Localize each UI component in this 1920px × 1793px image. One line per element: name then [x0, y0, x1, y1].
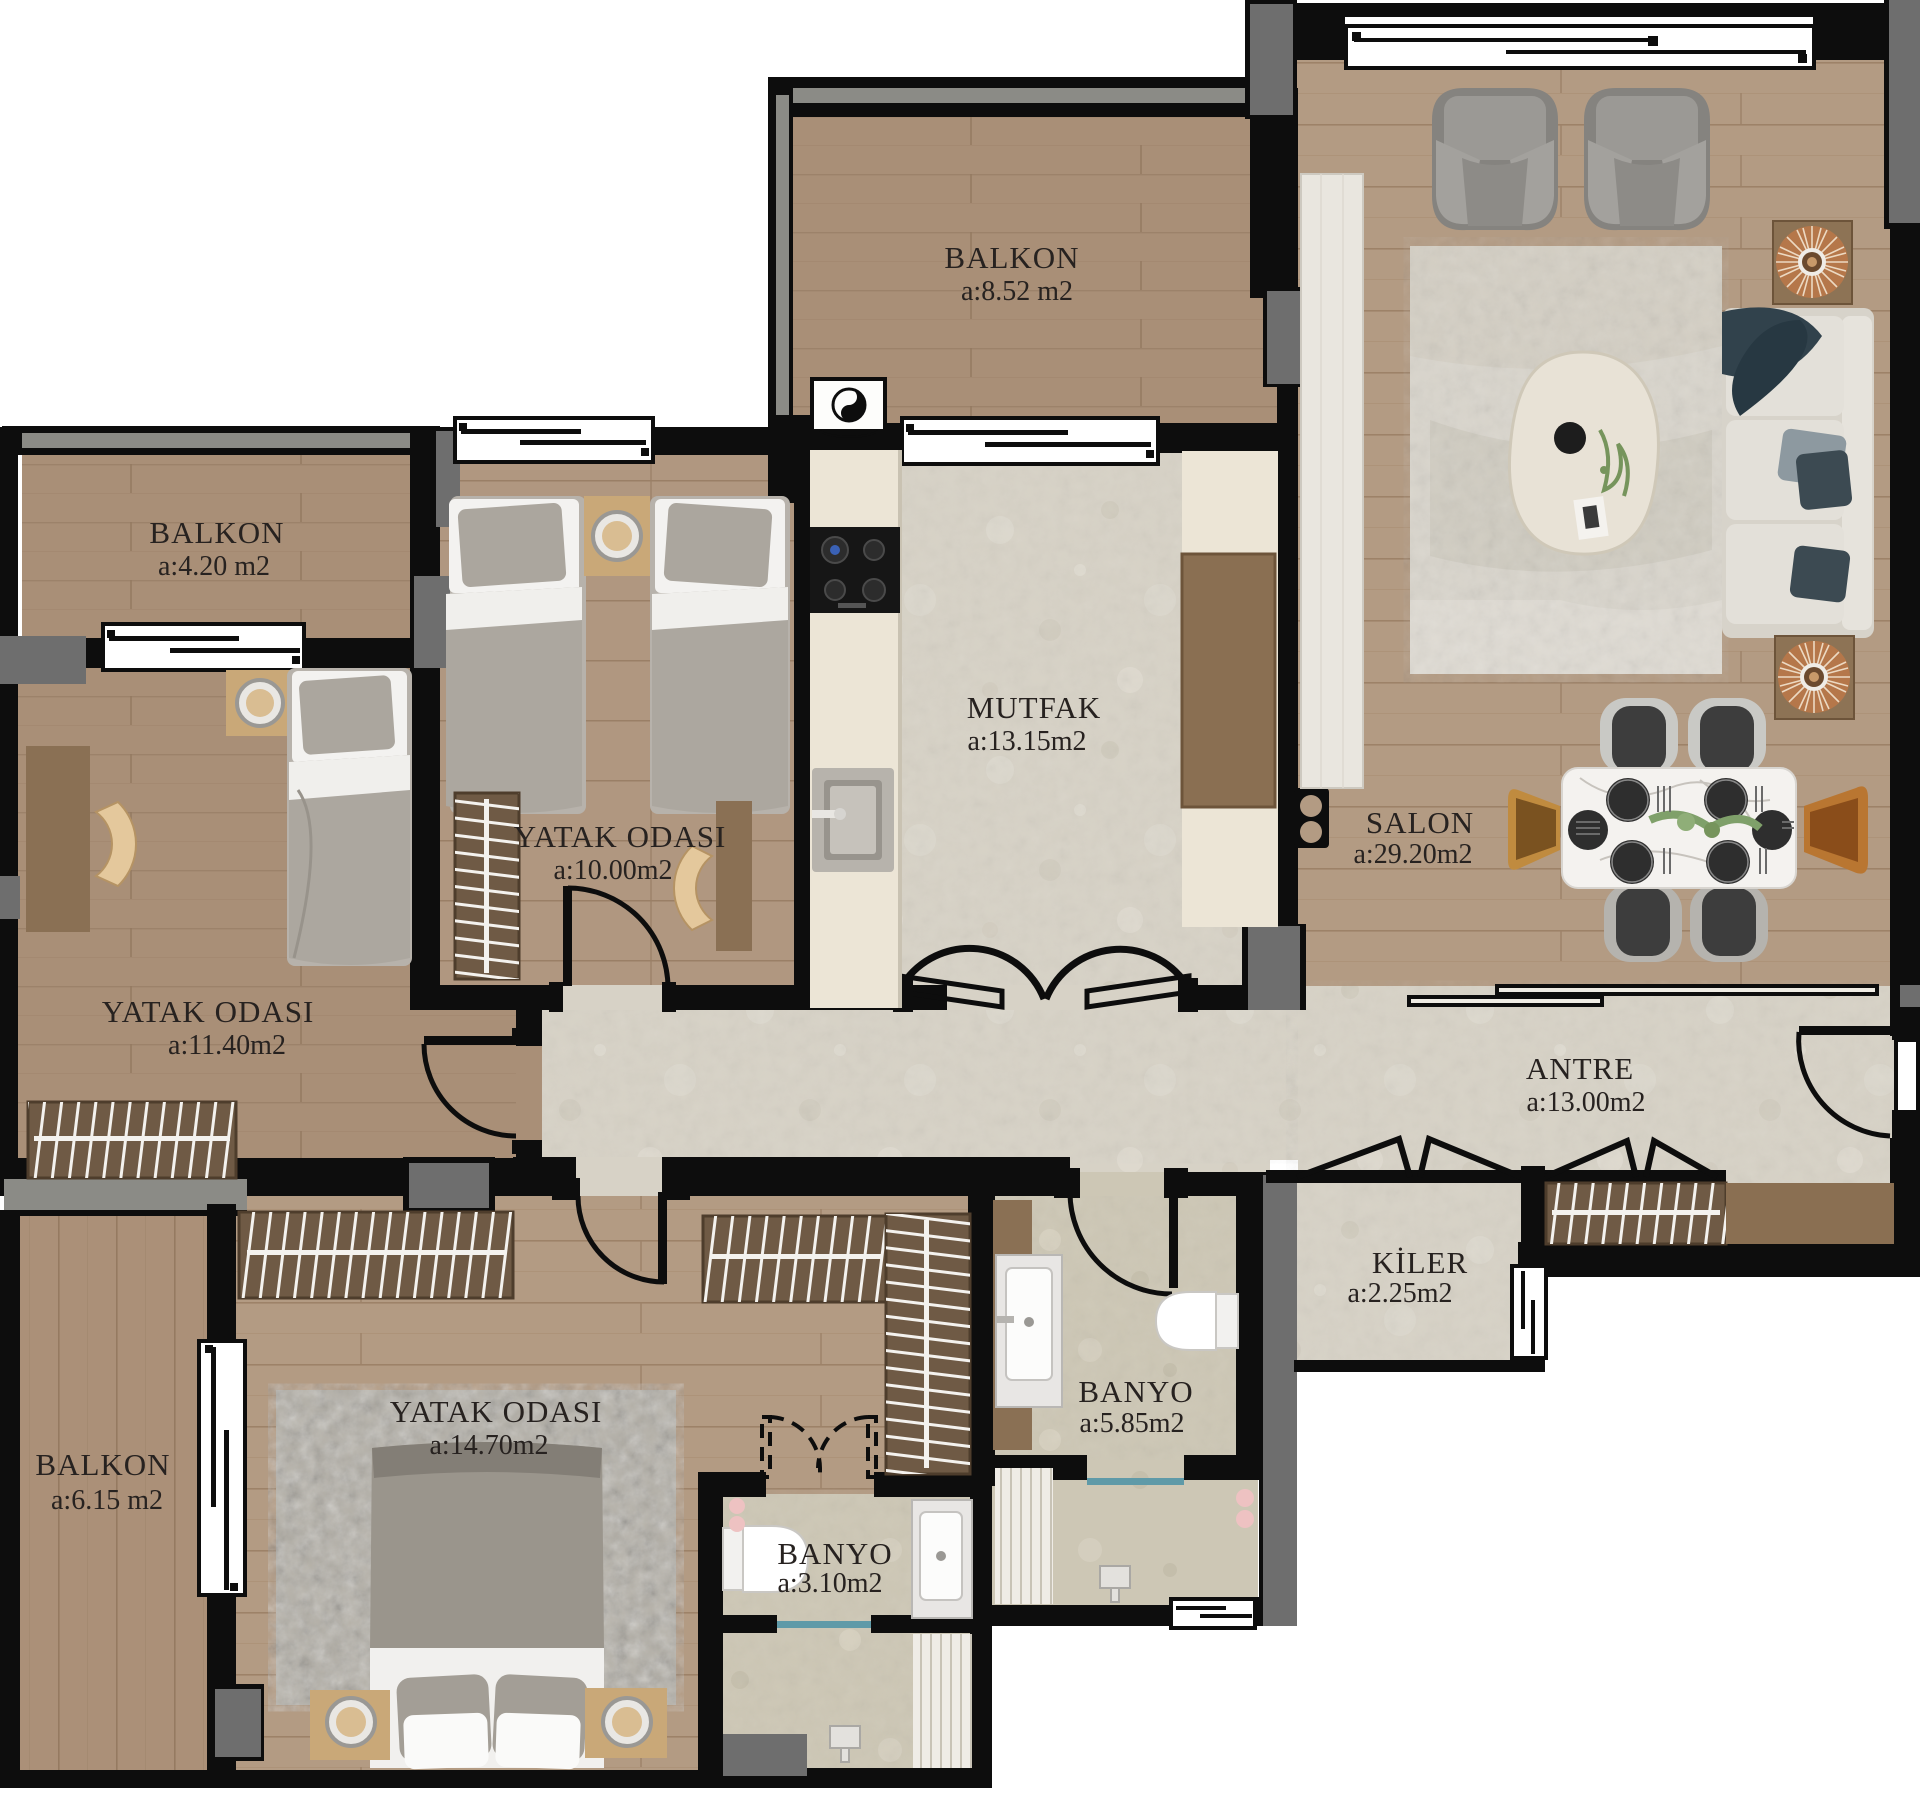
svg-text:ANTRE: ANTRE	[1526, 1051, 1634, 1086]
svg-text:a:29.20m2: a:29.20m2	[1354, 839, 1473, 870]
svg-text:a:10.00m2: a:10.00m2	[554, 855, 673, 886]
svg-text:BALKON: BALKON	[35, 1447, 170, 1482]
svg-text:YATAK ODASI: YATAK ODASI	[102, 994, 315, 1029]
svg-text:a:2.25m2: a:2.25m2	[1348, 1278, 1453, 1309]
svg-text:BALKON: BALKON	[149, 515, 284, 550]
svg-text:BANYO: BANYO	[777, 1536, 892, 1571]
svg-text:MUTFAK: MUTFAK	[967, 690, 1102, 725]
svg-text:a:13.00m2: a:13.00m2	[1527, 1087, 1646, 1118]
svg-text:KİLER: KİLER	[1372, 1245, 1468, 1280]
svg-text:YATAK ODASI: YATAK ODASI	[390, 1394, 603, 1429]
svg-text:YATAK ODASI: YATAK ODASI	[514, 819, 727, 854]
svg-text:a:6.15 m2: a:6.15 m2	[51, 1485, 163, 1516]
svg-text:a:3.10m2: a:3.10m2	[778, 1568, 883, 1599]
svg-text:a:5.85m2: a:5.85m2	[1080, 1408, 1185, 1439]
svg-text:BALKON: BALKON	[944, 240, 1079, 275]
svg-text:SALON: SALON	[1366, 805, 1474, 840]
svg-text:BANYO: BANYO	[1078, 1374, 1193, 1409]
svg-text:a:13.15m2: a:13.15m2	[968, 726, 1087, 757]
svg-text:a:4.20 m2: a:4.20 m2	[158, 551, 270, 582]
svg-text:a:11.40m2: a:11.40m2	[168, 1030, 286, 1061]
svg-text:a:14.70m2: a:14.70m2	[430, 1430, 549, 1461]
svg-text:a:8.52 m2: a:8.52 m2	[961, 276, 1073, 307]
